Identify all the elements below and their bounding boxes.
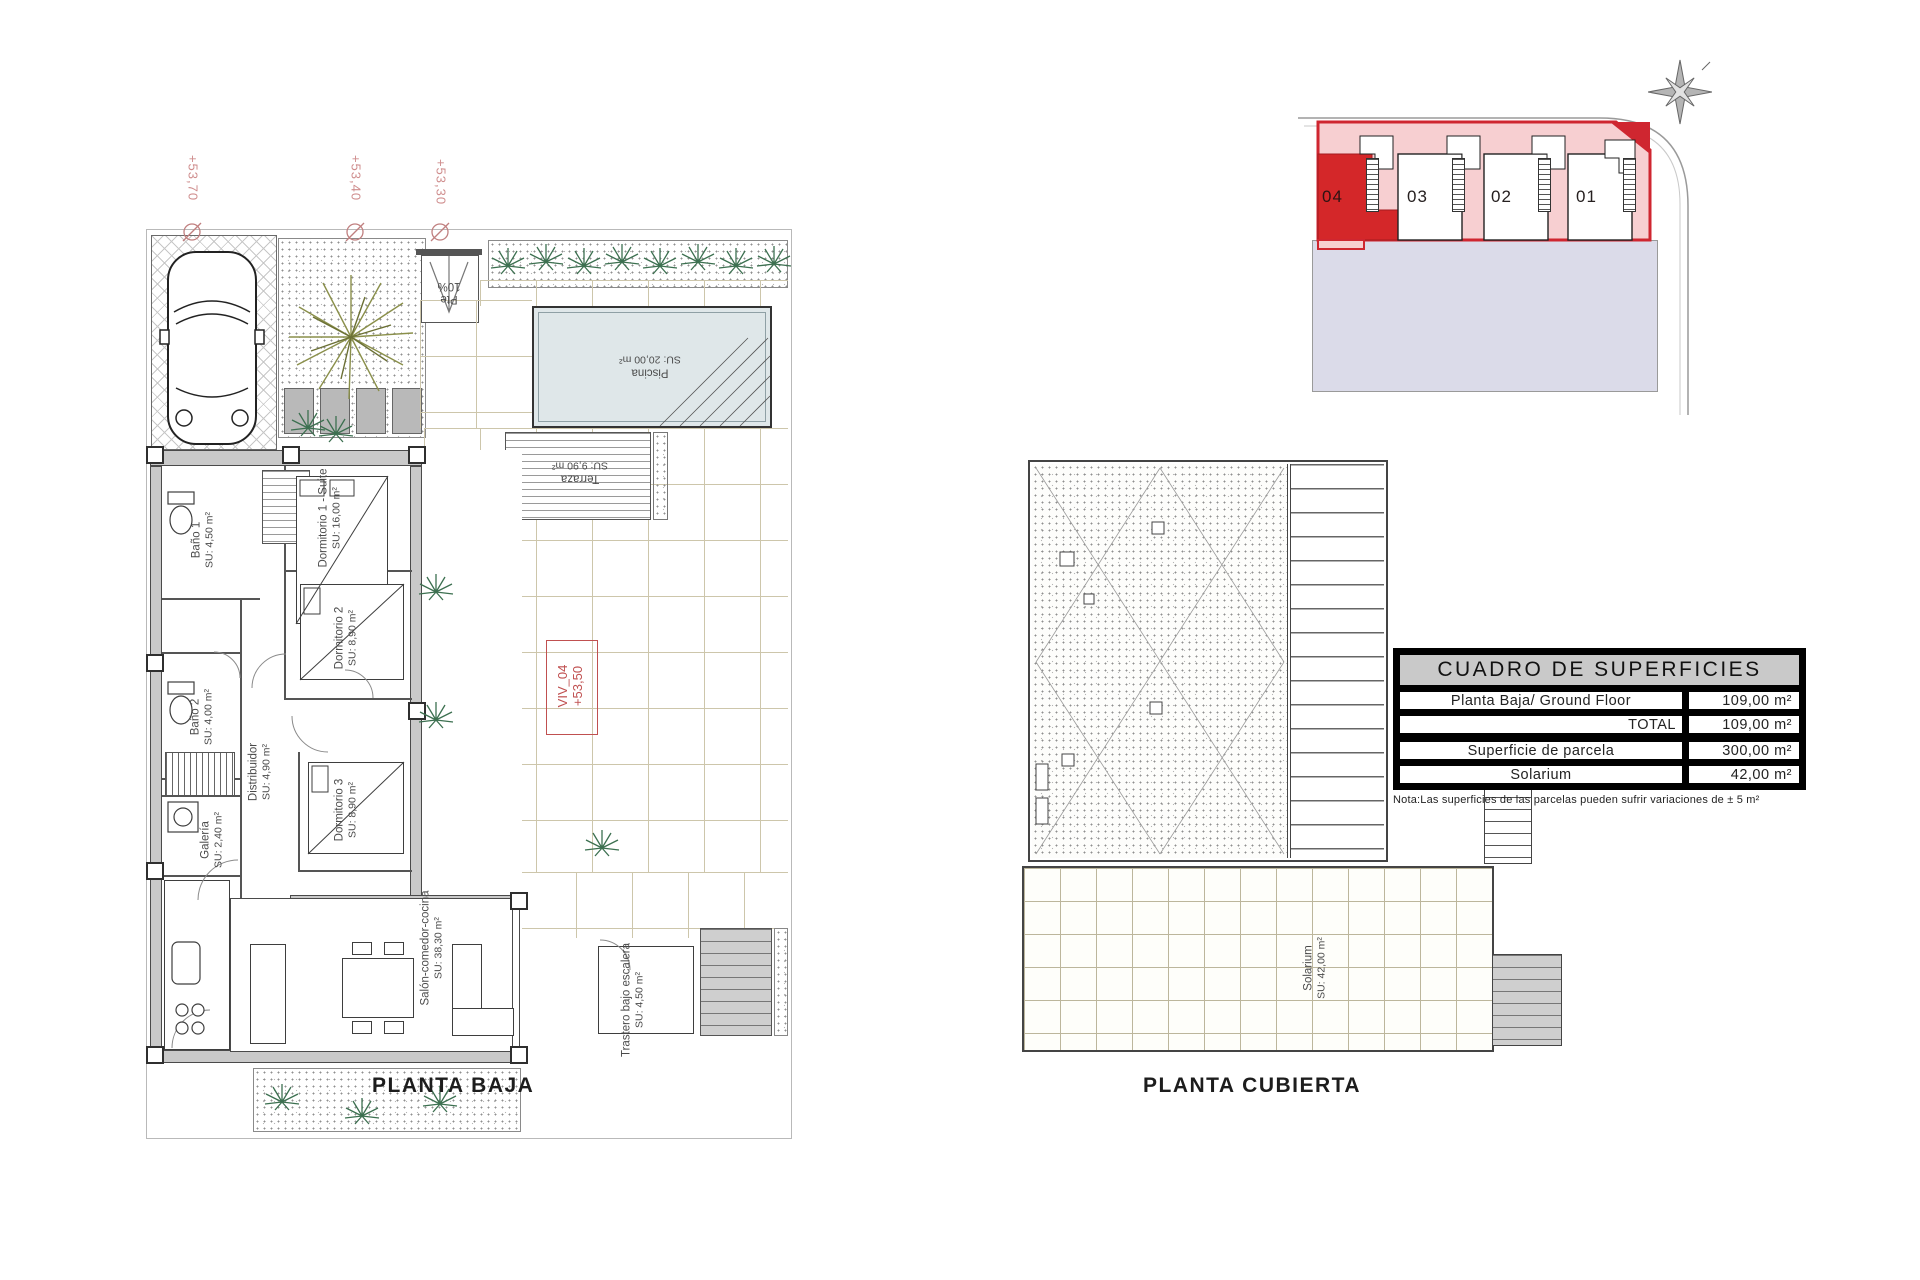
unit-stair-hatch [1366, 158, 1379, 212]
dwelling-badge: VIV_04 +53,50 [556, 665, 586, 708]
table-row: Planta Baja/ Ground Floor 109,00 m² [1398, 690, 1801, 711]
unit-stair-hatch [1452, 158, 1465, 212]
solarium-terrace [1022, 866, 1494, 1052]
table-row: TOTAL 109,00 m² [1398, 714, 1801, 735]
parcel-outline [1310, 118, 1660, 253]
surfaces-table-title: CUADRO DE SUPERFICIES [1398, 653, 1801, 687]
row-label: Solarium [1398, 764, 1684, 785]
row-label: Planta Baja/ Ground Floor [1398, 690, 1684, 711]
surfaces-table-note: Nota:Las superficies de las parcelas pue… [1393, 794, 1806, 806]
car-icon [160, 252, 264, 444]
row-label: TOTAL [1398, 714, 1684, 735]
room-label-dorm3: Dormitorio 3SU: 8,90 m² [333, 779, 358, 842]
street-block [1312, 240, 1658, 392]
room-label-banyo2: Baño 2SU: 4,00 m² [189, 689, 214, 745]
site-plan: 04 03 02 01 [1290, 40, 1730, 420]
elevation-label: +53,70 [185, 155, 200, 201]
room-label-dorm1: Dormitorio 1 - SuiteSU: 16,00 m² [317, 468, 342, 567]
row-value: 42,00 m² [1687, 764, 1801, 785]
room-label-distribuidor: DistribuidorSU: 4,90 m² [247, 743, 272, 801]
tree-icon [289, 275, 413, 399]
unit-label-01: 01 [1576, 187, 1597, 207]
roof-slope-lines [1032, 464, 1288, 858]
ground-plan-drawing-overlay [140, 220, 800, 1140]
unit-label-03: 03 [1407, 187, 1428, 207]
architectural-plan-sheet: { "titles": { "ground_floor": "PLANTA BA… [0, 0, 1920, 1280]
room-label-terraza: TerrazaSU: 9,90 m² [552, 459, 608, 484]
elevation-label: +53,30 [433, 159, 448, 205]
row-value: 109,00 m² [1687, 690, 1801, 711]
north-compass-icon [1648, 58, 1712, 130]
room-label-galeria: GaleríaSU: 2,40 m² [199, 812, 224, 868]
surfaces-table: CUADRO DE SUPERFICIES Planta Baja/ Groun… [1393, 648, 1806, 806]
row-value: 109,00 m² [1687, 714, 1801, 735]
row-value: 300,00 m² [1687, 740, 1801, 761]
unit-label-02: 02 [1491, 187, 1512, 207]
level-marker-icon [429, 221, 451, 243]
room-label-dorm2: Dormitorio 2SU: 8,90 m² [333, 607, 358, 670]
roof-stair-landing [1492, 954, 1562, 1046]
room-label-trastero: Trastero bajo escaleraSU: 4,50 m² [620, 943, 645, 1057]
unit-label-04: 04 [1322, 187, 1343, 207]
elevation-label: +53,40 [348, 155, 363, 201]
roof-title: PLANTA CUBIERTA [1143, 1074, 1361, 1098]
table-row: Solarium 42,00 m² [1398, 764, 1801, 785]
ground-floor-title: PLANTA BAJA [372, 1074, 534, 1098]
level-marker-icon [344, 221, 366, 243]
pergola-slats [1290, 464, 1384, 858]
ramp-label: Pte10% [437, 279, 460, 305]
unit-stair-hatch [1623, 158, 1636, 212]
unit-stair-hatch [1538, 158, 1551, 212]
room-label-banyo1: Baño 1SU: 4,50 m² [190, 512, 215, 568]
room-label-piscina: PiscinaSU: 20,00 m² [619, 353, 681, 378]
ground-floor-plan: +53,70 +53,40 +53,30 VIV_04 +53,50 Pte10… [0, 0, 960, 1280]
row-label: Superficie de parcela [1398, 740, 1684, 761]
room-label-solarium: SolariumSU: 42,00 m² [1302, 937, 1327, 999]
table-row: Superficie de parcela 300,00 m² [1398, 740, 1801, 761]
level-marker-icon [181, 221, 203, 243]
room-label-salon: Salón-comedor-cocinaSU: 38,30 m² [419, 890, 444, 1005]
